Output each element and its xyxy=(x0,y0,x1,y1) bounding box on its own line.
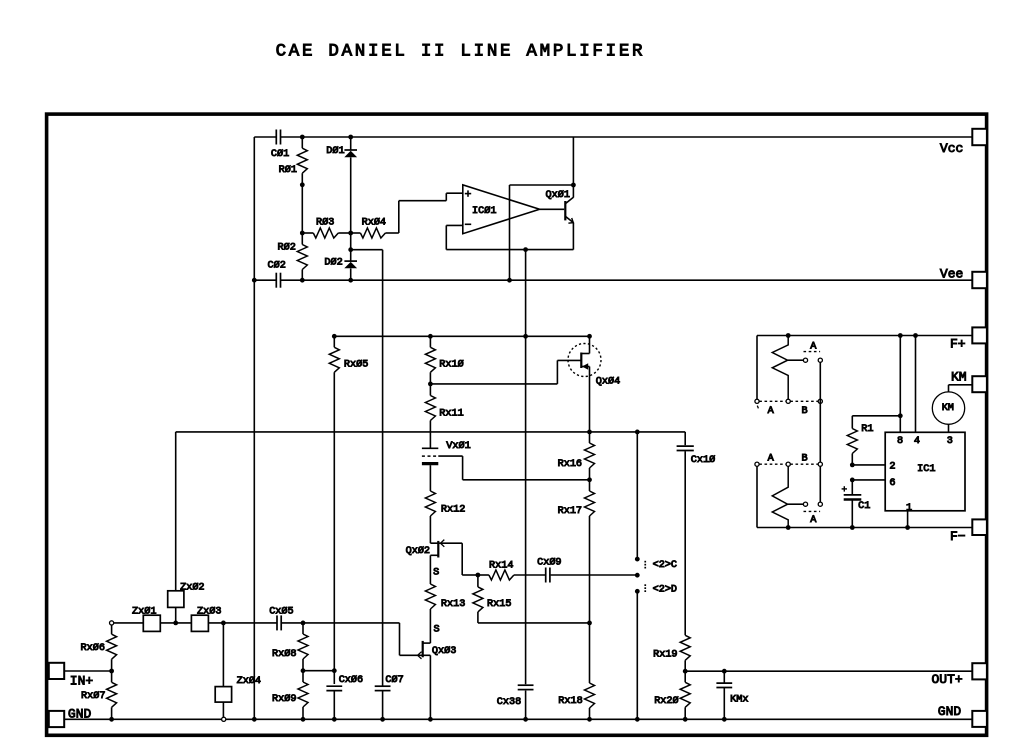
svg-text:CØ2: CØ2 xyxy=(268,260,286,272)
svg-text:QxØ2: QxØ2 xyxy=(406,545,430,557)
svg-text:Rx16: Rx16 xyxy=(558,459,582,470)
svg-text:A: A xyxy=(810,341,817,352)
svg-text:ZxØ1: ZxØ1 xyxy=(132,605,156,617)
svg-text:RxØ8: RxØ8 xyxy=(272,648,296,660)
svg-text:QxØ1: QxØ1 xyxy=(546,189,570,201)
svg-text:2: 2 xyxy=(889,461,895,472)
svg-text:QxØ4: QxØ4 xyxy=(596,375,620,387)
svg-text:Vcc: Vcc xyxy=(940,141,963,156)
svg-text:KMx: KMx xyxy=(730,695,748,706)
svg-text:8: 8 xyxy=(897,436,903,447)
svg-text:Rx15: Rx15 xyxy=(487,599,511,610)
svg-text:RØ3: RØ3 xyxy=(316,217,334,229)
svg-text:A: A xyxy=(810,515,817,526)
svg-text:B: B xyxy=(802,454,808,465)
svg-text:RxØ4: RxØ4 xyxy=(362,217,386,229)
svg-text:IC1: IC1 xyxy=(917,464,935,475)
svg-text:CØ7: CØ7 xyxy=(385,674,403,686)
svg-text:RxØ6: RxØ6 xyxy=(81,642,105,654)
svg-text:Cx1Ø: Cx1Ø xyxy=(691,454,715,466)
svg-text:6: 6 xyxy=(889,478,895,489)
svg-text:C1: C1 xyxy=(858,501,870,512)
svg-text:RxØ9: RxØ9 xyxy=(272,693,296,705)
svg-text:Rx11: Rx11 xyxy=(439,409,463,420)
svg-text:QxØ3: QxØ3 xyxy=(432,645,456,657)
svg-text:CxØ9: CxØ9 xyxy=(537,557,561,569)
svg-text:GND: GND xyxy=(938,704,962,719)
svg-text:CxØ6: CxØ6 xyxy=(339,674,363,686)
svg-text:RØ2: RØ2 xyxy=(278,242,296,254)
svg-text:ZxØ2: ZxØ2 xyxy=(180,581,204,593)
svg-text:DØ2: DØ2 xyxy=(324,257,342,269)
svg-text:3: 3 xyxy=(947,436,953,447)
svg-text:CØ1: CØ1 xyxy=(271,148,289,160)
svg-text:CAE DANIEL II LINE AMPLIFIER: CAE DANIEL II LINE AMPLIFIER xyxy=(276,41,646,61)
svg-text:R1: R1 xyxy=(861,424,873,435)
svg-text:RxØ7: RxØ7 xyxy=(81,690,105,702)
svg-text:Cx38: Cx38 xyxy=(497,697,521,708)
svg-text:Rx13: Rx13 xyxy=(441,599,465,610)
svg-text:F−: F− xyxy=(950,529,966,544)
svg-text:RØ1: RØ1 xyxy=(279,164,297,176)
svg-text:Rx18: Rx18 xyxy=(558,696,582,707)
svg-text:Vee: Vee xyxy=(940,267,963,282)
svg-text:KM: KM xyxy=(942,403,954,414)
svg-text:IN+: IN+ xyxy=(70,673,94,688)
svg-text:B: B xyxy=(802,406,808,417)
svg-text:<2>D: <2>D xyxy=(653,585,677,596)
svg-text:DØ1: DØ1 xyxy=(326,145,344,157)
svg-text:Rx14: Rx14 xyxy=(489,560,513,571)
svg-text:Rx17: Rx17 xyxy=(558,506,582,517)
svg-text:<2>C: <2>C xyxy=(653,560,677,571)
svg-text:S: S xyxy=(434,624,440,635)
svg-text:Rx12: Rx12 xyxy=(441,505,465,516)
svg-text:VxØ1: VxØ1 xyxy=(446,440,470,452)
svg-text:KM: KM xyxy=(951,369,967,384)
svg-text:Rx1Ø: Rx1Ø xyxy=(439,359,463,371)
svg-text:F+: F+ xyxy=(950,337,966,352)
svg-text:Rx19: Rx19 xyxy=(653,650,677,661)
svg-text:Rx2Ø: Rx2Ø xyxy=(654,695,678,707)
svg-text:A: A xyxy=(768,454,775,465)
svg-text:ICØ1: ICØ1 xyxy=(472,205,496,217)
svg-text:S: S xyxy=(433,568,439,579)
svg-text:RxØ5: RxØ5 xyxy=(344,359,368,371)
svg-text:CxØ5: CxØ5 xyxy=(269,605,293,617)
svg-text:4: 4 xyxy=(914,436,920,447)
svg-text:ZxØ3: ZxØ3 xyxy=(197,605,221,617)
svg-text:A: A xyxy=(768,406,775,417)
svg-text:ZxØ4: ZxØ4 xyxy=(237,675,261,687)
svg-text:OUT+: OUT+ xyxy=(932,672,963,687)
